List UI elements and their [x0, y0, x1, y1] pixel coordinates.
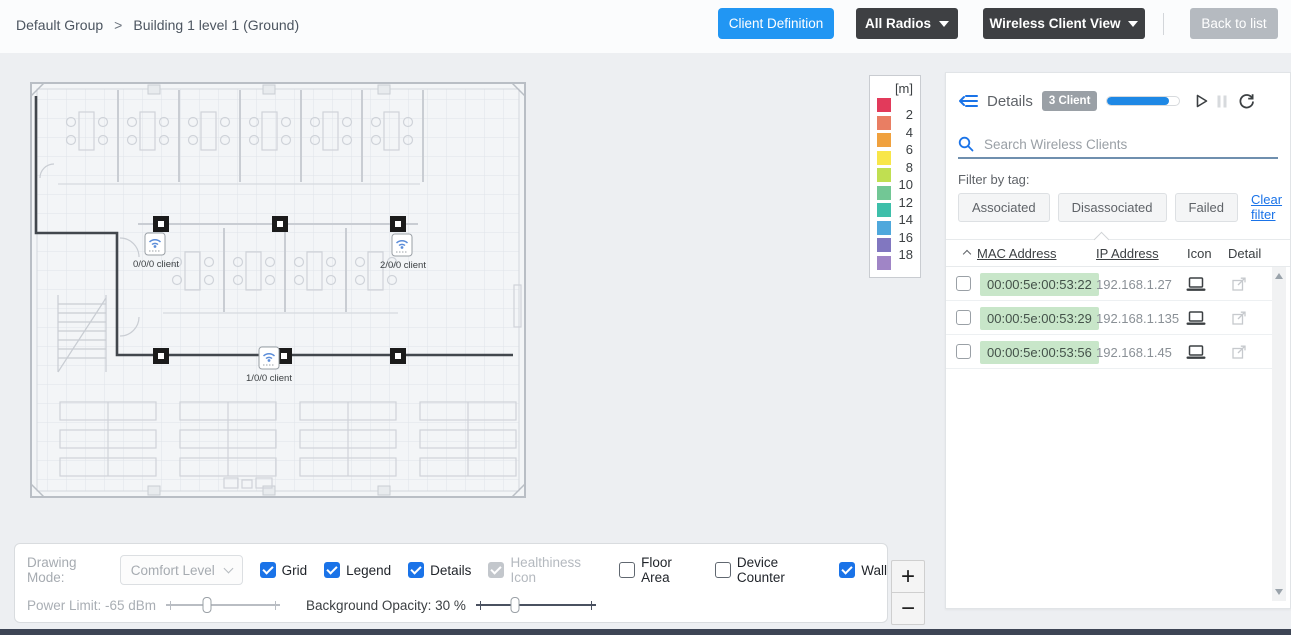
- legend-swatch: [877, 256, 891, 270]
- play-icon[interactable]: [1196, 94, 1208, 108]
- top-bar: Default Group > Building 1 level 1 (Grou…: [0, 0, 1291, 53]
- legend-swatch: [877, 203, 891, 217]
- ip-address-header[interactable]: IP Address: [1096, 246, 1159, 261]
- laptop-icon: [1186, 345, 1206, 365]
- legend-tick: 12: [895, 195, 913, 213]
- panel-scrollbar[interactable]: [1272, 267, 1286, 601]
- legend-swatch: [877, 98, 891, 112]
- breadcrumb-group[interactable]: Default Group: [16, 17, 103, 33]
- filter-chip-associated[interactable]: Associated: [958, 193, 1050, 222]
- wall-handle[interactable]: [153, 348, 169, 364]
- topbar-divider: [1163, 13, 1164, 35]
- drawing-toolbar: Drawing Mode: Comfort Level Grid Legend …: [14, 543, 888, 623]
- legend-unit-label: [m]: [877, 81, 913, 96]
- floorplan-canvas[interactable]: 0/0/0 client 2/0/0 client 1/0/0 client: [28, 80, 528, 500]
- bottom-strip: [0, 629, 1291, 635]
- client-table-rows: 00:00:5e:00:53:22 192.168.1.27 00:00:5e:…: [946, 267, 1274, 369]
- slider-end-icon: [271, 601, 280, 610]
- background-opacity-label: Background Opacity: 30 %: [306, 598, 466, 613]
- mac-address-value: 00:00:5e:00:53:56: [980, 341, 1099, 364]
- power-limit-slider[interactable]: [166, 596, 280, 614]
- legend-swatch: [877, 151, 891, 165]
- open-detail-icon[interactable]: [1232, 345, 1246, 364]
- row-checkbox[interactable]: [956, 310, 971, 325]
- wireless-clients-panel: Details 3 Client Filter by tag: Associat…: [945, 72, 1291, 609]
- legend-tick: 16: [895, 230, 913, 248]
- chevron-down-icon: [223, 563, 233, 573]
- legend-tick: 8: [895, 160, 913, 178]
- legend-swatch: [877, 238, 891, 252]
- legend-swatch: [877, 186, 891, 200]
- drawing-mode-label: Drawing Mode:: [27, 555, 112, 585]
- slider-end-icon: [476, 601, 485, 610]
- icon-header: Icon: [1187, 246, 1212, 261]
- ip-address-value: 192.168.1.45: [1096, 345, 1172, 360]
- ap-label: 0/0/0 client: [133, 259, 179, 270]
- all-radios-dropdown[interactable]: All Radios: [856, 8, 958, 39]
- distance-legend: [m] 2 4 6 8 10 12 14 16 18: [869, 75, 921, 278]
- checkbox-checked-icon[interactable]: [839, 562, 855, 578]
- dropdown-arrow-icon: [1128, 21, 1138, 27]
- filter-chip-failed[interactable]: Failed: [1175, 193, 1238, 222]
- refresh-icon[interactable]: [1238, 93, 1255, 110]
- table-row[interactable]: 00:00:5e:00:53:29 192.168.1.135: [946, 301, 1274, 335]
- refresh-progress-fill: [1107, 97, 1168, 105]
- table-row[interactable]: 00:00:5e:00:53:56 192.168.1.45: [946, 335, 1274, 369]
- breadcrumb-separator: >: [114, 17, 122, 33]
- ip-address-value: 192.168.1.27: [1096, 277, 1172, 292]
- back-to-list-button[interactable]: Back to list: [1190, 8, 1278, 39]
- checkbox-wall[interactable]: Wall: [839, 562, 887, 578]
- checkbox-checked-icon[interactable]: [260, 562, 276, 578]
- breadcrumb: Default Group > Building 1 level 1 (Grou…: [16, 17, 299, 33]
- legend-swatch: [877, 133, 891, 147]
- mac-address-header[interactable]: MAC Address: [977, 246, 1056, 261]
- filter-by-tag-label: Filter by tag:: [958, 172, 1030, 187]
- search-icon: [958, 136, 974, 152]
- open-detail-icon[interactable]: [1232, 277, 1246, 296]
- collapse-panel-icon[interactable]: [958, 93, 979, 109]
- panel-notch: [1094, 231, 1110, 247]
- checkbox-checked-icon[interactable]: [408, 562, 424, 578]
- table-row[interactable]: 00:00:5e:00:53:22 192.168.1.27: [946, 267, 1274, 301]
- filter-chip-disassociated[interactable]: Disassociated: [1058, 193, 1167, 222]
- checkbox-legend[interactable]: Legend: [324, 562, 391, 578]
- panel-header: Details 3 Client: [958, 91, 1280, 111]
- sort-ascending-icon: [963, 250, 971, 258]
- drawing-mode-select[interactable]: Comfort Level: [120, 555, 243, 585]
- zoom-out-button[interactable]: −: [891, 592, 925, 625]
- scroll-up-icon[interactable]: [1275, 273, 1283, 279]
- wall-handle[interactable]: [153, 216, 169, 232]
- refresh-progress-bar: [1106, 96, 1180, 106]
- row-checkbox[interactable]: [956, 276, 971, 291]
- search-row: [958, 131, 1278, 159]
- open-detail-icon[interactable]: [1232, 311, 1246, 330]
- checkbox-device-counter[interactable]: Device Counter: [715, 555, 822, 585]
- wall-handle[interactable]: [390, 348, 406, 364]
- filter-chips: Associated Disassociated Failed Clear fi…: [958, 192, 1290, 222]
- clear-filter-link[interactable]: Clear filter: [1251, 192, 1290, 222]
- detail-header: Detail: [1228, 246, 1261, 261]
- power-limit-slider-thumb[interactable]: [202, 597, 211, 613]
- scroll-down-icon[interactable]: [1275, 589, 1283, 595]
- wall-handle[interactable]: [272, 216, 288, 232]
- checkbox-disabled-icon: [488, 562, 504, 578]
- client-definition-button[interactable]: Client Definition: [718, 8, 834, 39]
- checkbox-grid[interactable]: Grid: [260, 562, 308, 578]
- mac-address-value: 00:00:5e:00:53:29: [980, 307, 1099, 330]
- floorplan-outline: [31, 83, 525, 497]
- legend-tick: 4: [895, 125, 913, 143]
- pause-icon[interactable]: [1217, 95, 1227, 108]
- checkbox-floor-area[interactable]: Floor Area: [619, 555, 698, 585]
- ip-address-value: 192.168.1.135: [1096, 311, 1179, 326]
- client-table-header: MAC Address IP Address Icon Detail: [946, 239, 1290, 267]
- legend-swatch: [877, 221, 891, 235]
- ap-label: 2/0/0 client: [380, 260, 426, 271]
- slider-end-icon: [587, 601, 596, 610]
- checkbox-unchecked-icon[interactable]: [619, 562, 635, 578]
- client-count-badge: 3 Client: [1042, 91, 1098, 111]
- laptop-icon: [1186, 311, 1206, 331]
- ap-label: 1/0/0 client: [246, 373, 292, 384]
- laptop-icon: [1186, 277, 1206, 297]
- search-input[interactable]: [984, 137, 1278, 152]
- legend-tick: 10: [895, 177, 913, 195]
- background-opacity-slider-thumb[interactable]: [511, 597, 520, 613]
- legend-swatch: [877, 168, 891, 182]
- mac-address-value: 00:00:5e:00:53:22: [980, 273, 1099, 296]
- background-opacity-slider[interactable]: [476, 596, 596, 614]
- checkbox-healthiness-icon: Healthiness Icon: [488, 555, 602, 585]
- slider-end-icon: [166, 601, 175, 610]
- panel-title: Details: [987, 93, 1033, 110]
- checkbox-details[interactable]: Details: [408, 562, 471, 578]
- breadcrumb-location: Building 1 level 1 (Ground): [133, 17, 299, 33]
- checkbox-checked-icon[interactable]: [324, 562, 340, 578]
- power-limit-label: Power Limit: -65 dBm: [27, 598, 156, 613]
- wireless-client-view-dropdown[interactable]: Wireless Client View: [983, 8, 1145, 39]
- legend-tick: 18: [895, 247, 913, 265]
- legend-tick: 6: [895, 142, 913, 160]
- legend-tick: 14: [895, 212, 913, 230]
- legend-tick: 2: [895, 107, 913, 125]
- zoom-controls: + −: [891, 560, 925, 625]
- zoom-in-button[interactable]: +: [891, 560, 925, 593]
- checkbox-unchecked-icon[interactable]: [715, 562, 731, 578]
- dropdown-arrow-icon: [939, 21, 949, 27]
- row-checkbox[interactable]: [956, 344, 971, 359]
- legend-swatch: [877, 116, 891, 130]
- wall-handle[interactable]: [390, 216, 406, 232]
